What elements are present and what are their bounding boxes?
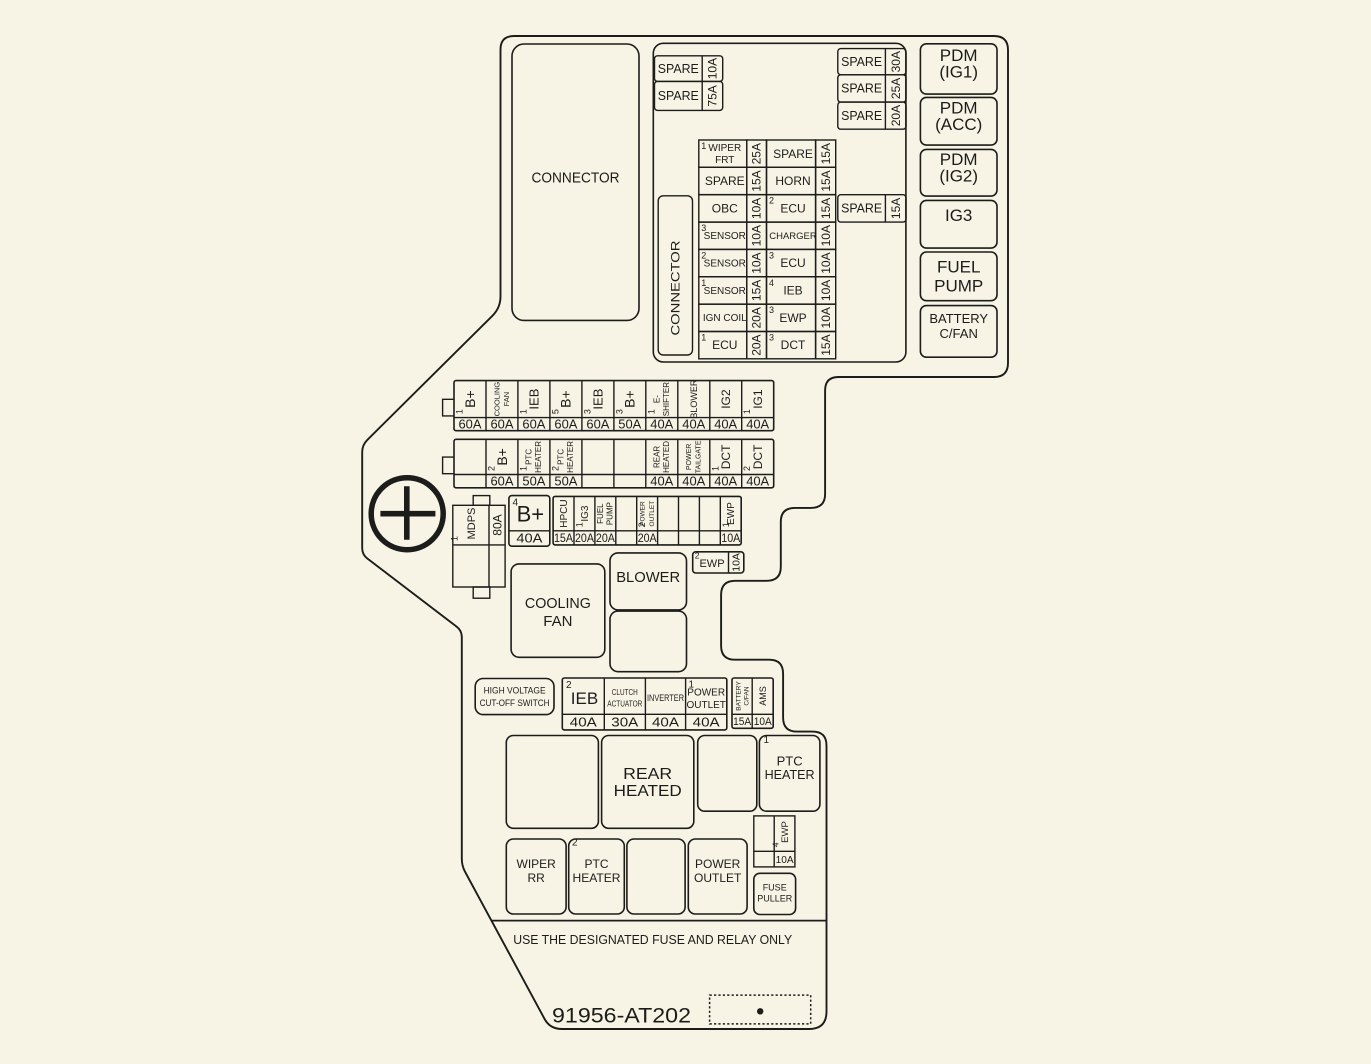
- svg-text:FUSE: FUSE: [763, 883, 787, 893]
- svg-text:IEB: IEB: [783, 284, 802, 298]
- svg-text:1: 1: [455, 409, 465, 414]
- svg-text:IG2: IG2: [719, 389, 733, 409]
- svg-text:1: 1: [518, 409, 528, 414]
- svg-text:91956-AT202: 91956-AT202: [552, 1005, 691, 1028]
- svg-text:15A: 15A: [819, 170, 833, 191]
- svg-text:POWER: POWER: [639, 501, 646, 526]
- svg-text:B+: B+: [622, 390, 638, 408]
- svg-text:1: 1: [450, 536, 460, 541]
- svg-text:INVERTER: INVERTER: [647, 693, 684, 704]
- svg-text:1: 1: [646, 409, 656, 414]
- svg-text:SENSOR: SENSOR: [704, 231, 746, 242]
- svg-text:ECU: ECU: [780, 256, 805, 270]
- svg-text:HORN: HORN: [775, 174, 810, 188]
- svg-text:FAN: FAN: [543, 613, 572, 630]
- svg-text:COOLING: COOLING: [525, 595, 591, 612]
- svg-text:SPARE: SPARE: [841, 202, 882, 216]
- svg-text:B+: B+: [494, 448, 510, 466]
- svg-text:HEATER: HEATER: [534, 441, 543, 473]
- svg-text:3: 3: [769, 250, 774, 260]
- svg-text:3: 3: [701, 223, 706, 233]
- svg-text:POWER: POWER: [695, 857, 741, 871]
- svg-text:15A: 15A: [819, 334, 833, 355]
- svg-text:ECU: ECU: [712, 338, 737, 352]
- svg-text:40A: 40A: [682, 474, 705, 489]
- svg-text:HPCU: HPCU: [559, 499, 570, 527]
- svg-text:CHARGER: CHARGER: [769, 231, 817, 242]
- svg-text:EWP: EWP: [699, 558, 724, 570]
- svg-text:2: 2: [572, 838, 578, 849]
- svg-text:40A: 40A: [746, 474, 769, 489]
- svg-text:20A: 20A: [638, 531, 657, 545]
- svg-text:SPARE: SPARE: [841, 82, 882, 96]
- svg-text:1: 1: [742, 409, 752, 414]
- svg-text:IG3: IG3: [945, 206, 972, 225]
- svg-text:10A: 10A: [750, 198, 764, 219]
- svg-text:HEATER: HEATER: [566, 441, 575, 473]
- svg-text:30A: 30A: [889, 51, 903, 72]
- svg-text:SHIFTER: SHIFTER: [662, 382, 671, 416]
- svg-text:60A: 60A: [522, 417, 545, 432]
- svg-text:50A: 50A: [554, 474, 577, 489]
- svg-text:75A: 75A: [705, 85, 719, 106]
- svg-text:RR: RR: [528, 871, 546, 885]
- svg-text:1: 1: [575, 522, 585, 527]
- svg-text:40A: 40A: [693, 715, 720, 730]
- svg-text:40A: 40A: [746, 417, 769, 432]
- svg-text:(IG2): (IG2): [939, 167, 978, 186]
- svg-text:80A: 80A: [491, 514, 505, 535]
- svg-text:OUTLET: OUTLET: [694, 871, 742, 885]
- svg-text:SENSOR: SENSOR: [704, 259, 746, 270]
- svg-text:FUEL: FUEL: [596, 503, 605, 524]
- svg-text:OUTLET: OUTLET: [649, 501, 656, 527]
- svg-text:10A: 10A: [705, 58, 719, 79]
- svg-text:40A: 40A: [714, 474, 737, 489]
- svg-text:20A: 20A: [889, 105, 903, 126]
- svg-text:CUT-OFF SWITCH: CUT-OFF SWITCH: [480, 698, 550, 708]
- svg-text:10A: 10A: [819, 225, 833, 246]
- svg-text:40A: 40A: [682, 417, 705, 432]
- svg-text:3: 3: [582, 409, 592, 414]
- svg-text:1: 1: [710, 466, 720, 471]
- svg-text:10A: 10A: [819, 280, 833, 301]
- svg-text:SENSOR: SENSOR: [704, 286, 746, 297]
- svg-text:IEB: IEB: [590, 389, 605, 410]
- svg-text:SPARE: SPARE: [841, 109, 882, 123]
- svg-text:3: 3: [769, 333, 774, 343]
- svg-text:5: 5: [550, 409, 560, 414]
- svg-text:2: 2: [550, 466, 560, 471]
- svg-text:CONNECTOR: CONNECTOR: [668, 240, 682, 335]
- svg-text:40A: 40A: [650, 417, 673, 432]
- svg-text:SPARE: SPARE: [705, 174, 745, 188]
- svg-text:10A: 10A: [776, 854, 794, 866]
- svg-text:ECU: ECU: [780, 202, 805, 216]
- svg-text:POWER: POWER: [686, 444, 693, 470]
- svg-text:15A: 15A: [750, 280, 764, 301]
- svg-text:2: 2: [701, 250, 706, 260]
- svg-text:1: 1: [701, 278, 706, 288]
- svg-text:IEB: IEB: [571, 689, 598, 708]
- svg-text:1: 1: [701, 333, 706, 343]
- svg-text:PTC: PTC: [557, 449, 566, 465]
- svg-text:15A: 15A: [819, 198, 833, 219]
- svg-text:20A: 20A: [575, 531, 594, 545]
- svg-text:HEATED: HEATED: [614, 783, 682, 800]
- svg-text:REAR: REAR: [623, 766, 672, 783]
- svg-text:BATTERY: BATTERY: [929, 311, 988, 326]
- svg-text:40A: 40A: [570, 715, 597, 730]
- svg-text:50A: 50A: [522, 474, 545, 489]
- svg-text:SPARE: SPARE: [773, 147, 813, 161]
- svg-text:BLOWER: BLOWER: [616, 569, 680, 586]
- svg-text:SPARE: SPARE: [658, 62, 699, 76]
- svg-text:15A: 15A: [554, 531, 573, 545]
- svg-text:POWER: POWER: [687, 687, 725, 698]
- svg-text:25A: 25A: [889, 78, 903, 99]
- svg-text:2: 2: [769, 196, 774, 206]
- svg-text:IG1: IG1: [751, 389, 765, 409]
- svg-text:C/FAN: C/FAN: [940, 326, 978, 341]
- svg-text:60A: 60A: [491, 474, 514, 489]
- svg-text:(IG1): (IG1): [939, 63, 978, 82]
- svg-text:SPARE: SPARE: [658, 89, 699, 103]
- svg-text:FAN: FAN: [502, 392, 511, 407]
- svg-text:10A: 10A: [731, 553, 743, 572]
- svg-text:BLOWER: BLOWER: [689, 379, 699, 419]
- svg-text:60A: 60A: [459, 417, 482, 432]
- svg-text:IEB: IEB: [526, 389, 541, 410]
- svg-text:FRT: FRT: [715, 155, 734, 166]
- svg-text:10A: 10A: [750, 252, 764, 273]
- svg-text:COOLING: COOLING: [493, 382, 502, 417]
- svg-text:20A: 20A: [750, 307, 764, 328]
- svg-text:2: 2: [742, 466, 752, 471]
- svg-text:1: 1: [764, 735, 770, 746]
- svg-text:DCT: DCT: [751, 444, 765, 469]
- svg-text:2: 2: [487, 466, 497, 471]
- svg-text:WIPER: WIPER: [708, 143, 741, 154]
- svg-text:REAR: REAR: [653, 446, 662, 468]
- svg-text:3: 3: [769, 305, 774, 315]
- svg-text:B+: B+: [517, 502, 545, 527]
- svg-text:TAILGATE: TAILGATE: [696, 440, 703, 473]
- svg-text:HIGH VOLTAGE: HIGH VOLTAGE: [484, 686, 546, 696]
- svg-text:60A: 60A: [491, 417, 514, 432]
- svg-text:EWP: EWP: [726, 502, 737, 525]
- svg-text:40A: 40A: [516, 531, 542, 546]
- svg-text:20A: 20A: [596, 531, 615, 545]
- svg-text:60A: 60A: [554, 417, 577, 432]
- svg-text:CLUTCH: CLUTCH: [612, 687, 638, 697]
- svg-text:WIPER: WIPER: [517, 857, 557, 871]
- svg-text:30A: 30A: [611, 715, 638, 730]
- svg-text:DCT: DCT: [781, 338, 806, 352]
- svg-text:3: 3: [614, 409, 624, 414]
- svg-text:10A: 10A: [750, 225, 764, 246]
- svg-text:HEATED: HEATED: [662, 441, 671, 473]
- svg-text:HEATER: HEATER: [573, 871, 621, 885]
- svg-text:OBC: OBC: [712, 202, 738, 216]
- svg-text:MDPS: MDPS: [466, 508, 478, 540]
- svg-text:PUMP: PUMP: [934, 276, 983, 295]
- svg-text:25A: 25A: [750, 143, 764, 164]
- svg-text:SPARE: SPARE: [841, 55, 882, 69]
- svg-text:40A: 40A: [714, 417, 737, 432]
- svg-text:DCT: DCT: [719, 444, 733, 469]
- svg-text:15A: 15A: [750, 170, 764, 191]
- svg-text:40A: 40A: [650, 474, 673, 489]
- svg-text:10A: 10A: [819, 307, 833, 328]
- svg-text:EWP: EWP: [780, 821, 791, 843]
- svg-text:PULLER: PULLER: [757, 894, 793, 904]
- svg-text:B+: B+: [558, 390, 574, 408]
- svg-text:PTC: PTC: [525, 449, 534, 465]
- svg-text:FUEL: FUEL: [937, 258, 980, 277]
- svg-text:PTC: PTC: [585, 857, 609, 871]
- svg-text:E-: E-: [653, 395, 662, 403]
- svg-text:10A: 10A: [819, 252, 833, 273]
- svg-text:IG3: IG3: [580, 505, 591, 522]
- svg-text:4: 4: [769, 278, 774, 288]
- svg-text:15A: 15A: [819, 143, 833, 164]
- svg-text:HEATER: HEATER: [765, 767, 815, 782]
- svg-text:10A: 10A: [721, 531, 740, 545]
- svg-text:USE THE DESIGNATED FUSE AND RE: USE THE DESIGNATED FUSE AND RELAY ONLY: [513, 933, 793, 947]
- svg-text:(ACC): (ACC): [935, 115, 982, 134]
- svg-text:40A: 40A: [652, 715, 679, 730]
- svg-text:2: 2: [637, 522, 647, 527]
- svg-text:PUMP: PUMP: [606, 502, 615, 525]
- svg-text:1: 1: [701, 141, 706, 151]
- svg-text:ACTUATOR: ACTUATOR: [607, 698, 642, 708]
- svg-text:BATTERY: BATTERY: [736, 681, 743, 711]
- svg-text:OUTLET: OUTLET: [686, 700, 725, 711]
- svg-text:4: 4: [772, 842, 781, 847]
- svg-text:60A: 60A: [586, 417, 609, 432]
- svg-text:15A: 15A: [733, 716, 752, 728]
- svg-text:AMS: AMS: [758, 686, 768, 706]
- svg-text:20A: 20A: [750, 334, 764, 355]
- svg-text:B+: B+: [462, 390, 478, 408]
- svg-text:50A: 50A: [618, 417, 641, 432]
- svg-text:1: 1: [518, 466, 528, 471]
- svg-text:1: 1: [721, 522, 731, 527]
- svg-text:C/FAN: C/FAN: [744, 686, 751, 705]
- svg-text:10A: 10A: [754, 716, 773, 728]
- svg-text:IGN COIL: IGN COIL: [703, 313, 747, 324]
- svg-text:CONNECTOR: CONNECTOR: [532, 170, 620, 187]
- svg-text:EWP: EWP: [779, 311, 806, 325]
- svg-text:15A: 15A: [889, 198, 903, 219]
